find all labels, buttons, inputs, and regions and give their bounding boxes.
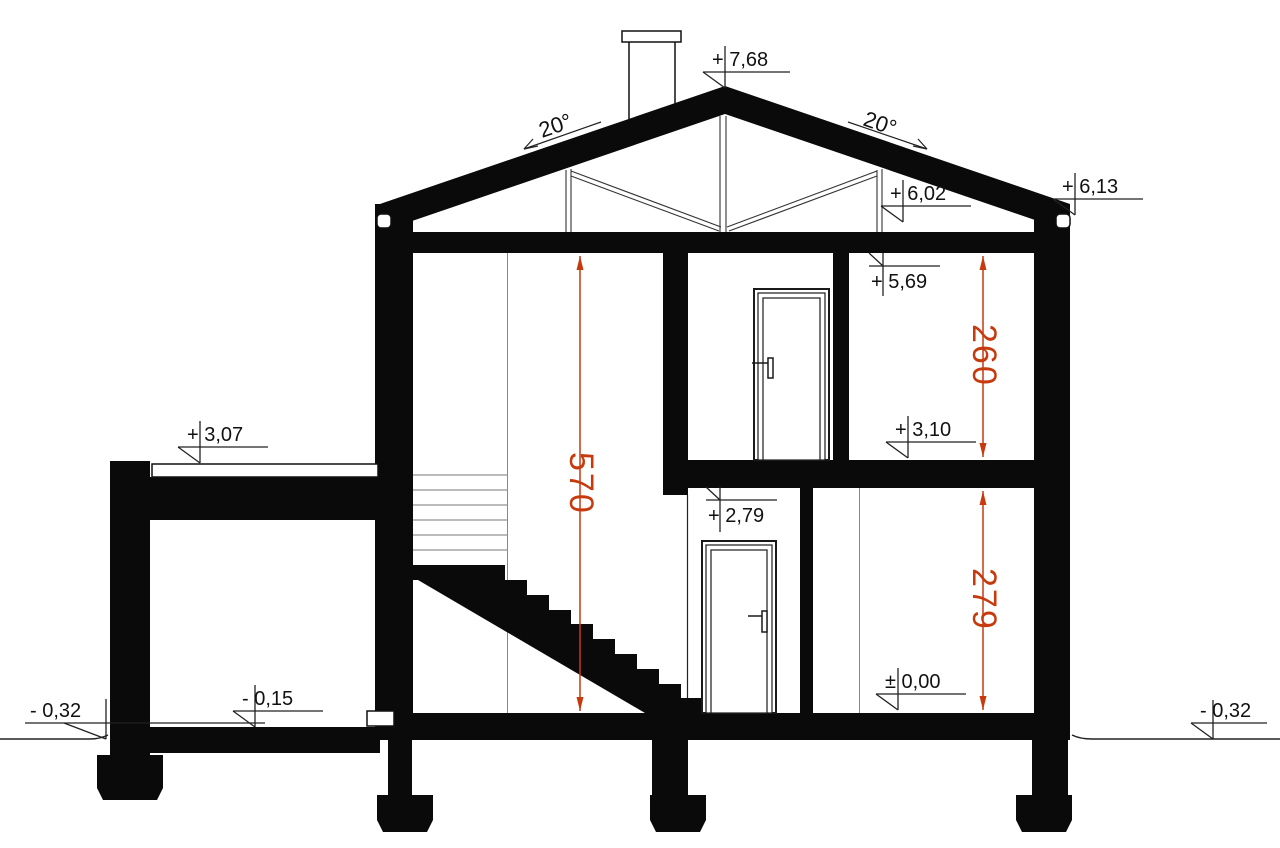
level-peak-label: + 7,68 — [712, 49, 768, 71]
wall-upper-right — [833, 253, 849, 460]
wall-ground-partition — [800, 488, 813, 715]
level-door-lintel-label: + 2,79 — [708, 505, 764, 527]
footing-right — [1016, 795, 1072, 832]
wing-roof-band — [150, 477, 380, 520]
level-wing-roof-label: + 3,07 — [187, 424, 243, 446]
level-ground-floor-label: ± 0,00 — [885, 671, 940, 693]
level-ground-right-label: - 0,32 — [1200, 700, 1251, 722]
dim-upper-room-label: 260 — [965, 324, 1003, 387]
cross-section-page: 570 260 279 20° 20° + 7,68 + 6,13 — [0, 0, 1280, 848]
garage-step — [367, 711, 394, 726]
door-ground — [702, 541, 776, 713]
dim-ground-room-label: 279 — [965, 568, 1003, 631]
section-drawing: 570 260 279 20° 20° + 7,68 + 6,13 — [0, 0, 1280, 848]
gutter-left — [377, 214, 391, 228]
foundation-wall-center — [652, 740, 688, 795]
foundation-wall-left — [388, 740, 412, 795]
dim-stairwell-label: 570 — [562, 452, 600, 515]
foundation-wall-right — [1032, 740, 1068, 795]
wall-left — [375, 204, 413, 740]
footing-center — [650, 795, 706, 832]
door-upper — [752, 289, 829, 460]
wall-right — [1034, 204, 1070, 740]
level-ground-left-label: - 0,32 — [30, 700, 81, 722]
footing-left — [377, 795, 433, 832]
level-eave-right-label: + 6,13 — [1062, 176, 1118, 198]
footing-wing — [97, 755, 163, 800]
level-garage-floor-label: - 0,15 — [242, 688, 293, 710]
wing-wall-left — [110, 461, 150, 755]
ceiling-slab — [378, 232, 1036, 253]
upper-floor-slab — [663, 460, 1036, 488]
chimney-cap — [622, 31, 681, 42]
wall-upper-left — [663, 253, 688, 495]
wing-roof-slab — [152, 464, 378, 477]
ground-floor-slab — [413, 713, 1036, 740]
level-truss-bottom-label: + 6,02 — [890, 183, 946, 205]
gutter-right — [1056, 214, 1070, 228]
wing-floor-slab — [150, 727, 380, 753]
level-ceiling-label: + 5,69 — [871, 271, 927, 293]
level-upper-floor-label: + 3,10 — [895, 419, 951, 441]
